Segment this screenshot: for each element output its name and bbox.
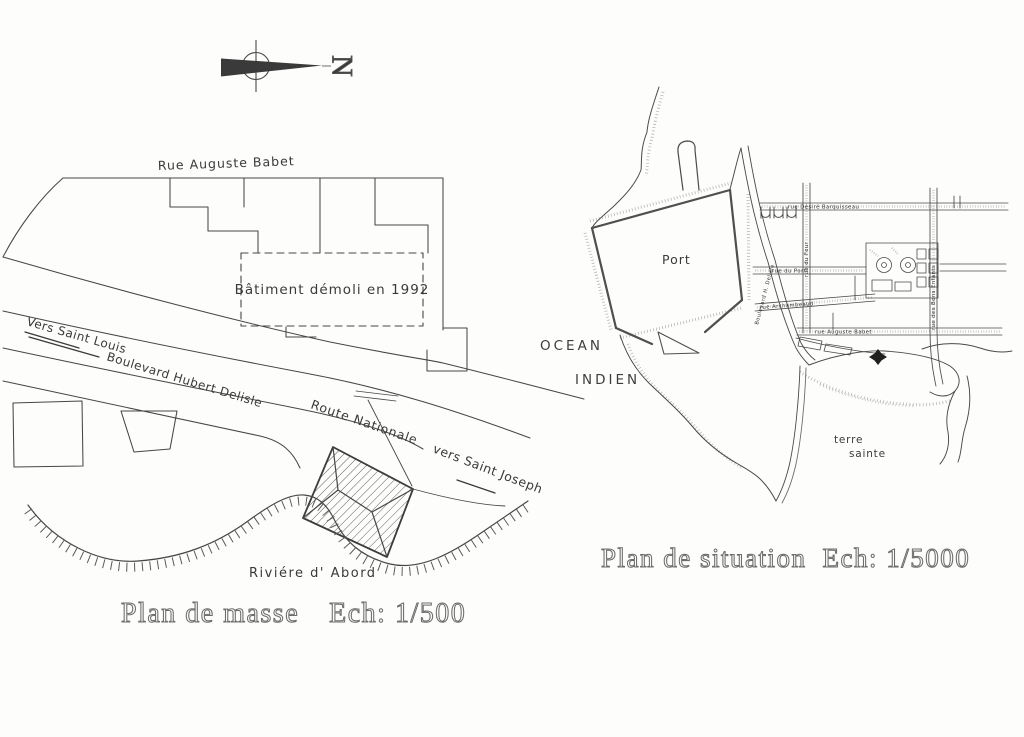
plan-de-masse-title-text: Plan de masse [121, 598, 299, 630]
label-rue-desire-barquisseau: rue Désiré Barquisseau [788, 204, 859, 211]
label-port: Port [662, 252, 691, 267]
label-route-nationale: Route Nationale [309, 397, 420, 448]
plan-de-masse-map: Rue Auguste Babet Bâtiment démoli en 199… [3, 153, 584, 581]
label-underlines [25, 332, 495, 493]
north-arrow: N [221, 40, 359, 92]
garden-square [866, 243, 938, 298]
north-letter: N [326, 55, 359, 77]
label-batiment-demoli: Bâtiment démoli en 1992 [235, 282, 430, 298]
label-rue-du-four: rue du Four [804, 241, 810, 277]
label-rue-auguste-babet: Rue Auguste Babet [158, 153, 295, 173]
plan-de-situation-scale: Ech: 1/5000 [822, 543, 970, 574]
coastline-north [592, 87, 663, 228]
jetty-pier [678, 141, 699, 190]
parcels [13, 401, 177, 467]
label-boulevard-hubert-delisle: Boulevard Hubert Delisle [105, 349, 264, 410]
label-sainte: sainte [849, 448, 886, 460]
scanned-plan-sheet: N [0, 0, 1024, 737]
label-rue-auguste-babet-situation: rue Auguste Babet [815, 330, 872, 336]
plan-de-situation-title: Plan de situation Ech: 1/5000 [601, 543, 970, 574]
label-vers-saint-joseph: vers Saint Joseph [431, 441, 545, 497]
river-bank [28, 495, 528, 572]
label-indien: INDIEN [575, 372, 640, 388]
plan-de-situation-title-text: Plan de situation [601, 543, 806, 574]
coastline-south [620, 335, 776, 501]
breakwater-mole [658, 332, 699, 354]
plan-de-masse-title: Plan de masse Ech: 1/500 [121, 598, 466, 630]
label-rue-du-port: rue du Port [772, 269, 806, 275]
plan-de-masse-scale: Ech: 1/500 [329, 598, 466, 630]
boulevard-h-delisle-road [741, 146, 815, 503]
label-rue-des-bons-enfants: rue des Bons Enfants [931, 265, 937, 330]
label-terre: terre [834, 434, 863, 446]
building-footprints [170, 178, 467, 371]
label-riviere-d-abord: Riviére d' Abord [249, 566, 377, 581]
shore-and-river [796, 337, 1012, 464]
label-ocean: OCEAN [540, 338, 603, 354]
bank-hachures [28, 501, 528, 572]
north-arrow-wedge [221, 59, 322, 77]
port-basin [585, 148, 749, 354]
plan-de-situation-map: OCEAN INDIEN Port terre sainte rue Désir… [540, 87, 1012, 503]
rue-auguste-babet-street [3, 178, 443, 257]
project-building-hatched [303, 447, 413, 557]
label-boulevard-h-delisle: Boulevard H. Delisle [754, 264, 776, 326]
